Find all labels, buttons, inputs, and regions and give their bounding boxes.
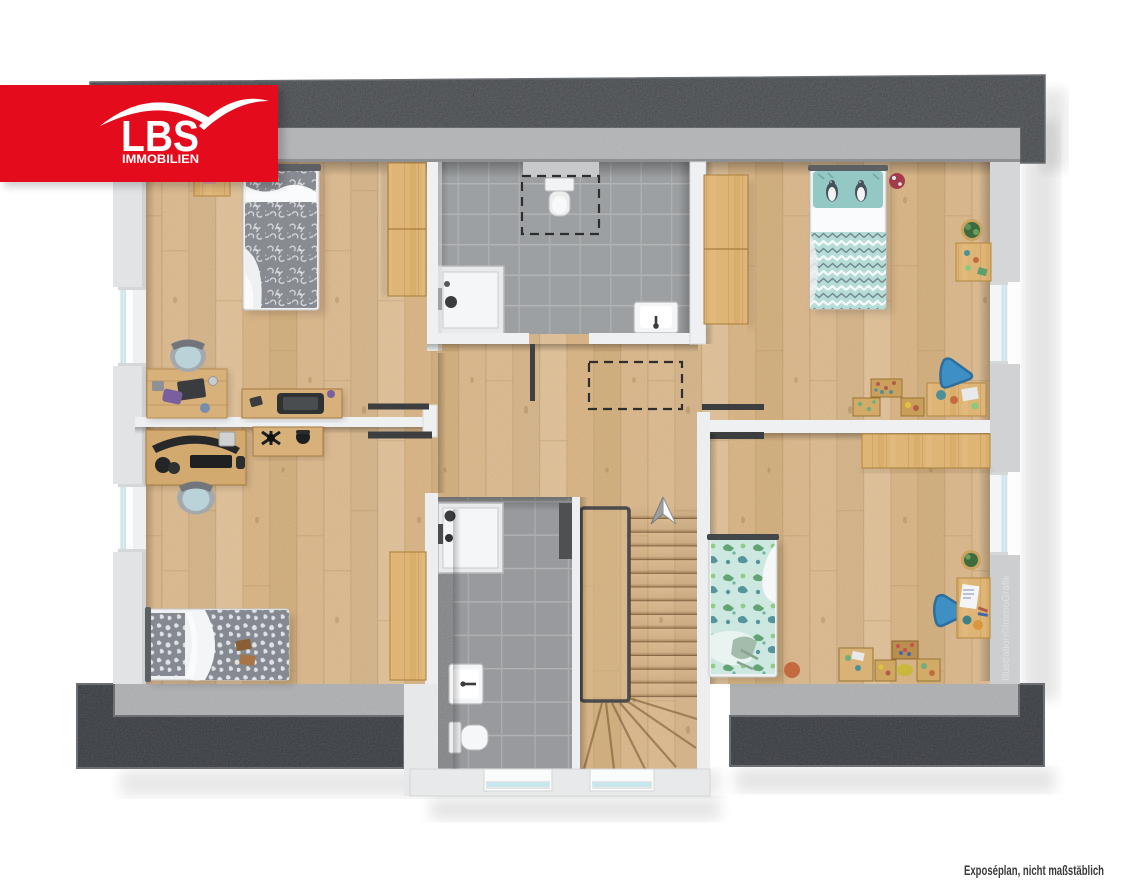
svg-text:IMMOBILIEN: IMMOBILIEN [122,152,199,166]
svg-text:Exposéplan, nicht maßstäblich: Exposéplan, nicht maßstäblich [964,863,1104,878]
svg-text:Illustration©ImmoGrafik: Illustration©ImmoGrafik [1001,574,1012,681]
